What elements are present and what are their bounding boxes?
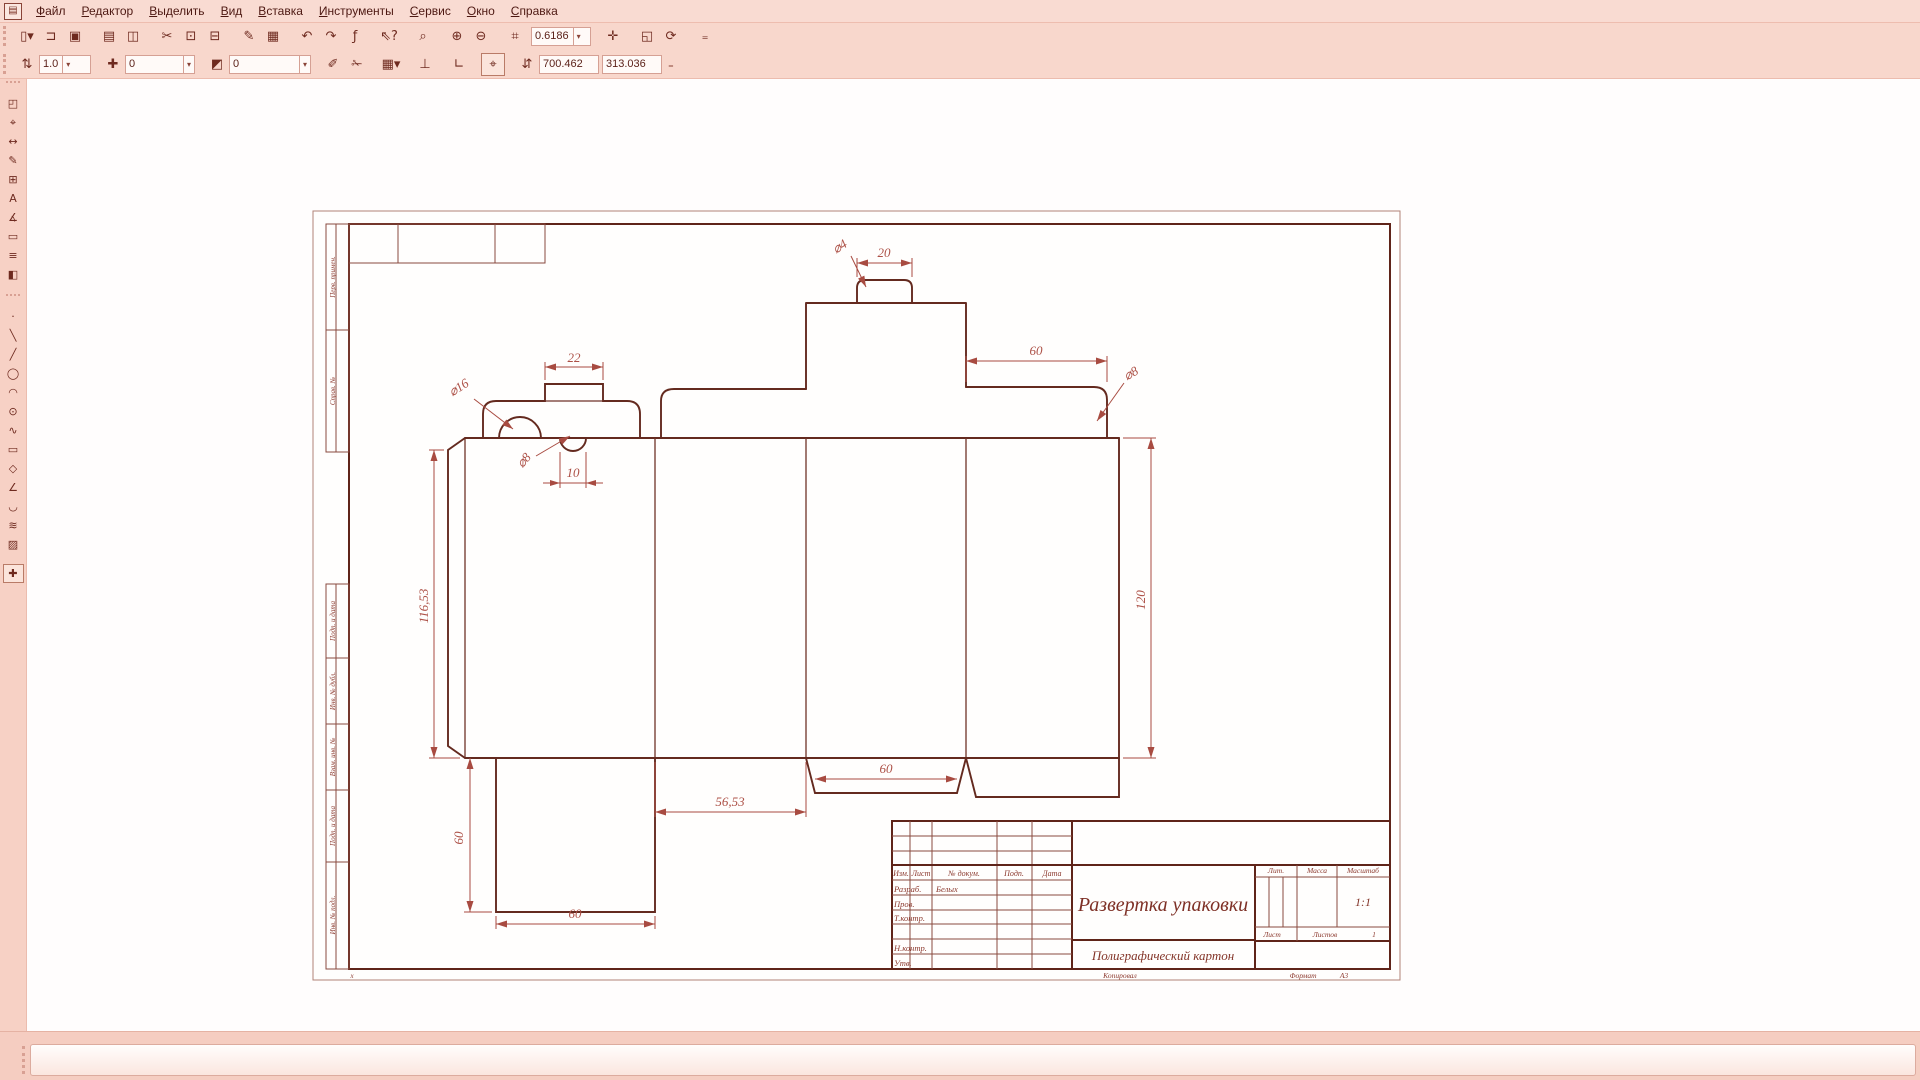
panel-reports[interactable]: ◧ [3,265,24,284]
toolbar-grip[interactable] [3,54,11,74]
dim-left-flap-height: 60 [451,831,466,845]
chevron-down-icon[interactable]: ▾ [183,56,191,73]
title-block-role-razrab: Разраб. [893,884,921,894]
toolbar-standard: ▯▾⊐▣▤◫✂⊡⊟✎▦↶↷ƒ⇖?⌕⊕⊖⌗ 0.6186 ▾ ✛◱⟳₌ [0,22,1920,51]
title-block-copied-label: Копировал [1102,971,1137,980]
open-icon[interactable]: ⊐ [39,25,63,48]
menu-help[interactable]: Справка [503,2,566,20]
compact-panel: ◰⌖↔✎⊞A∡▭≡◧ ·╲╱◯◠⊙∿▭◇∠◡≋▨ ✚ [0,78,27,1032]
params-overflow-icon[interactable]: ₌ [668,58,674,71]
title-block-role-utv: Утв. [894,958,912,968]
new-document-icon[interactable]: ▯▾ [15,25,39,48]
page-layout-icon[interactable]: ◫ [121,25,145,48]
polygon-tool[interactable]: ◇ [3,459,24,478]
dim-center-flap-width: 60 [880,761,894,776]
panel-editing[interactable]: ⊞ [3,170,24,189]
dim-tab-width: 20 [878,245,892,260]
title-block-scale-value: 1:1 [1355,895,1371,909]
line-style-icon[interactable]: ⇅ [15,53,39,76]
menu-window[interactable]: Окно [459,2,503,20]
frame-label-podp-data-2: Подп. и дата [329,806,337,847]
message-field[interactable] [30,1044,1916,1076]
grid-icon[interactable]: ▦▾ [379,53,403,76]
panel-geometry[interactable]: ⌖ [3,113,24,132]
frame-label-perv-primen: Перв. примен. [329,256,337,299]
current-style-icon[interactable]: ◩ [205,53,229,76]
panel-properties[interactable]: ◰ [3,94,24,113]
title-block-col-izm: Изм. [892,869,909,878]
zoom-out-icon[interactable]: ⊖ [469,25,493,48]
lineweight-select[interactable]: 1.0 ▾ [39,55,91,74]
zoom-area-icon[interactable]: ⌗ [503,25,527,48]
local-axes-icon[interactable]: ⊥ [413,53,437,76]
layer-select[interactable]: 0 ▾ [125,55,195,74]
title-block-role-nkontr: Н.контр. [893,943,927,953]
context-help-icon[interactable]: ⇖? [377,25,401,48]
title-block-mass-label: Масса [1306,866,1327,875]
show-page-icon[interactable]: ◱ [635,25,659,48]
zoom-selection-icon[interactable]: ⌕ [411,25,435,48]
property-bar-grip[interactable] [22,1046,25,1074]
title-block-format-value: A3 [1339,971,1349,980]
toolbar-grip[interactable] [3,26,11,46]
dim-glue-flap-height: 116,53 [416,588,431,623]
eraser-icon[interactable]: ✐ [321,53,345,76]
main-menu: ФайлРедакторВыделитьВидВставкаИнструмент… [28,2,566,20]
chevron-down-icon[interactable]: ▾ [62,56,70,73]
coords-icon[interactable]: ⇵ [515,53,539,76]
dim-small-tab-width: 22 [568,350,582,365]
pan-icon[interactable]: ✛ [601,25,625,48]
property-bar [0,1031,1920,1080]
panel-parametrization[interactable]: A [3,189,24,208]
spline-tool[interactable]: ∿ [3,421,24,440]
title-block-col-podp: Подп. [1003,869,1024,878]
title-block-role-tkontr: Т.контр. [894,913,925,923]
frame-label-inv-podl: Инв. № подл. [329,895,337,935]
table-icon[interactable]: ▦ [261,25,285,48]
drawing-material: Полиграфический картон [1091,948,1234,963]
menu-service[interactable]: Сервис [402,2,459,20]
menu-bar: ▤ ФайлРедакторВыделитьВидВставкаИнструме… [0,0,1920,23]
dim-left-flap-width: 60 [569,906,583,921]
offset-tool[interactable]: ≋ [3,516,24,535]
menu-tools[interactable]: Инструменты [311,2,402,20]
arc-tool[interactable]: ◠ [3,383,24,402]
paste-icon[interactable]: ⊟ [203,25,227,48]
fillet-tool[interactable]: ◡ [3,497,24,516]
panel-grip[interactable] [6,81,20,91]
chevron-down-icon[interactable]: ▾ [299,56,307,73]
dim-body-height: 120 [1133,590,1148,610]
circle-tool[interactable]: ◯ [3,364,24,383]
segment-tool[interactable]: ╱ [3,345,24,364]
title-block-sheets-value: 1 [1372,930,1376,939]
layer-icon[interactable]: ✚ [101,53,125,76]
frame-label-podp-data-1: Подп. и дата [329,601,337,642]
title-block-designer-name: Белых [935,884,958,894]
save-icon[interactable]: ▣ [63,25,87,48]
app-icon[interactable]: ▤ [4,3,22,20]
title-block-scale-label: Масштаб [1346,866,1379,875]
title-block-col-data: Дата [1042,869,1062,878]
chamfer-tool[interactable]: ∠ [3,478,24,497]
title-block-sheets-label: Листов [1312,930,1338,939]
copy-icon[interactable]: ⊡ [179,25,203,48]
style-select[interactable]: 0 ▾ [229,55,311,74]
title-block-format-label: Формат [1289,971,1317,980]
zoom-scale-select[interactable]: 0.6186 ▾ [531,27,591,46]
print-preview-icon[interactable]: ▤ [97,25,121,48]
title-block-col-list: Лист [911,869,931,878]
menu-editor[interactable]: Редактор [74,2,142,20]
drawing-title: Развертка упаковки [1077,894,1248,916]
auxiliary-line-tool[interactable]: ╲ [3,326,24,345]
dim-notch-offset: 10 [567,465,581,480]
cut-icon[interactable]: ✂ [155,25,179,48]
title-block-col-docnum: № докум. [947,869,980,878]
panel-grip[interactable] [6,294,20,304]
hatch-tool[interactable]: ▨ [3,535,24,554]
copy-style-icon[interactable]: ✎ [237,25,261,48]
undo-icon[interactable]: ↶ [295,25,319,48]
panel-dimensions[interactable]: ↔ [3,132,24,151]
title-block-lit-label: Лит. [1267,866,1284,875]
menu-file[interactable]: Файл [28,2,74,20]
chevron-down-icon[interactable]: ▾ [573,28,581,45]
frame-label-inv-dubl: Инв. № дубл. [329,672,337,711]
y-coordinate-field[interactable]: 313.036 [602,55,662,74]
zoom-scale-value: 0.6186 [535,30,569,42]
toolbar-overflow-icon[interactable]: ₌ [693,25,717,48]
frame-label-sprav-no: Справ. № [329,376,337,405]
panel-measurement[interactable]: ∡ [3,208,24,227]
x-coordinate-field[interactable]: 700.462 [539,55,599,74]
dim-top-flap-width: 60 [1030,343,1044,358]
frame-label-vzam-inv: Взам. инв. № [329,737,337,776]
rectangle-tool[interactable]: ▭ [3,440,24,459]
panel-selection[interactable]: ▭ [3,227,24,246]
menu-select[interactable]: Выделить [141,2,212,20]
panel-designations[interactable]: ✎ [3,151,24,170]
rebuild-view-icon[interactable]: ⟳ [659,25,683,48]
continuous-input-tool[interactable]: ✚ [3,564,24,583]
dim-panel-width: 56,53 [715,794,745,809]
panel-specification[interactable]: ≡ [3,246,24,265]
toolbar-current-state: ⇅ 1.0 ▾ ✚ 0 ▾ ◩ 0 ▾ ✐✁▦▾⊥∟⌖ ⇵ 700.462 31… [0,50,1920,79]
ellipse-tool[interactable]: ⊙ [3,402,24,421]
corner-snap-icon[interactable]: ∟ [447,53,471,76]
title-block-sheet-label: Лист [1262,930,1281,939]
trim-icon[interactable]: ✁ [345,53,369,76]
redo-icon[interactable]: ↷ [319,25,343,48]
snap-settings-icon[interactable]: ⌖ [481,53,505,76]
menu-insert[interactable]: Вставка [250,2,311,20]
variables-icon[interactable]: ƒ [343,25,367,48]
drawing-canvas[interactable]: Перв. примен. Справ. № Подп. и дата Инв.… [26,78,1920,1032]
zoom-in-icon[interactable]: ⊕ [445,25,469,48]
title-block-role-prov: Пров. [893,899,914,909]
point-tool[interactable]: · [3,307,24,326]
menu-view[interactable]: Вид [213,2,251,20]
